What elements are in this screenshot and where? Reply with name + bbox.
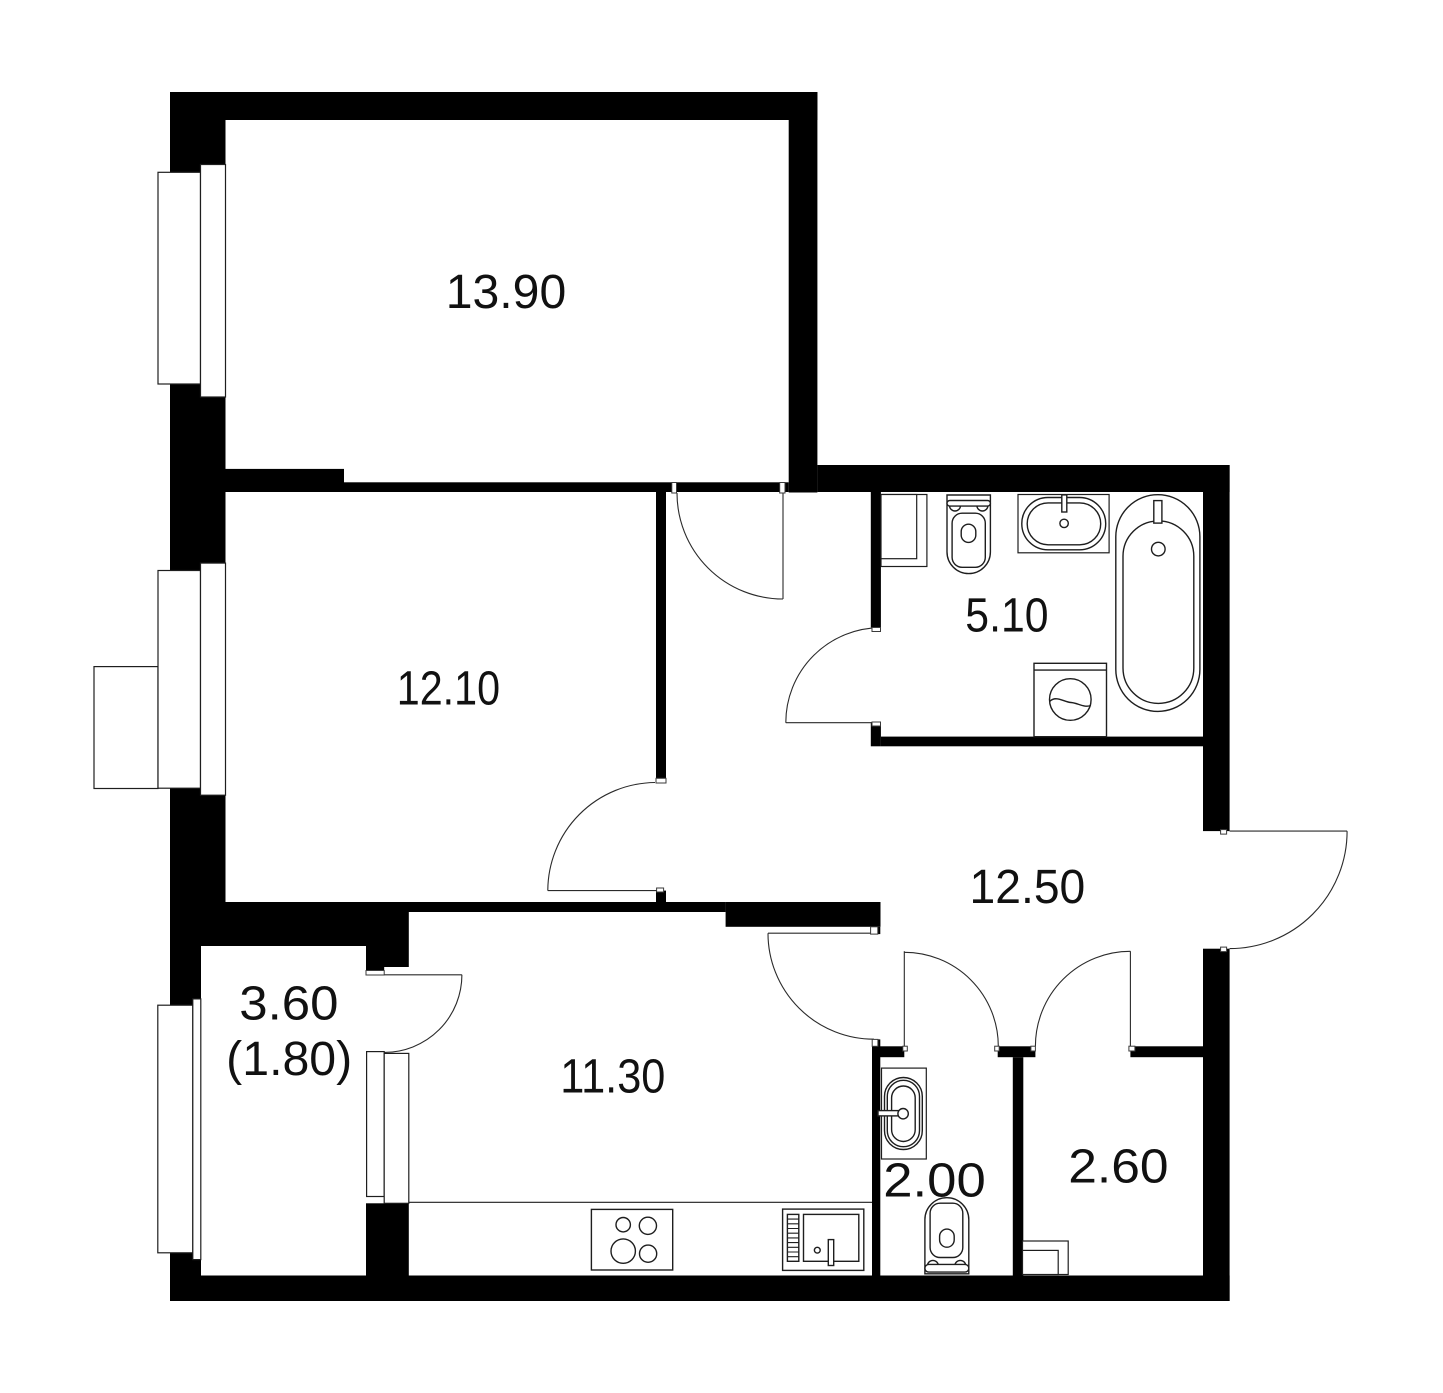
svg-text:2.00: 2.00 <box>883 1155 986 1208</box>
svg-text:5.10: 5.10 <box>965 590 1048 643</box>
svg-text:3.60: 3.60 <box>239 977 338 1030</box>
svg-text:12.50: 12.50 <box>970 861 1086 914</box>
svg-text:12.10: 12.10 <box>397 663 500 716</box>
svg-text:11.30: 11.30 <box>560 1051 665 1104</box>
svg-text:2.60: 2.60 <box>1068 1141 1168 1194</box>
svg-text:13.90: 13.90 <box>446 266 567 319</box>
svg-text:(1.80): (1.80) <box>226 1033 352 1086</box>
